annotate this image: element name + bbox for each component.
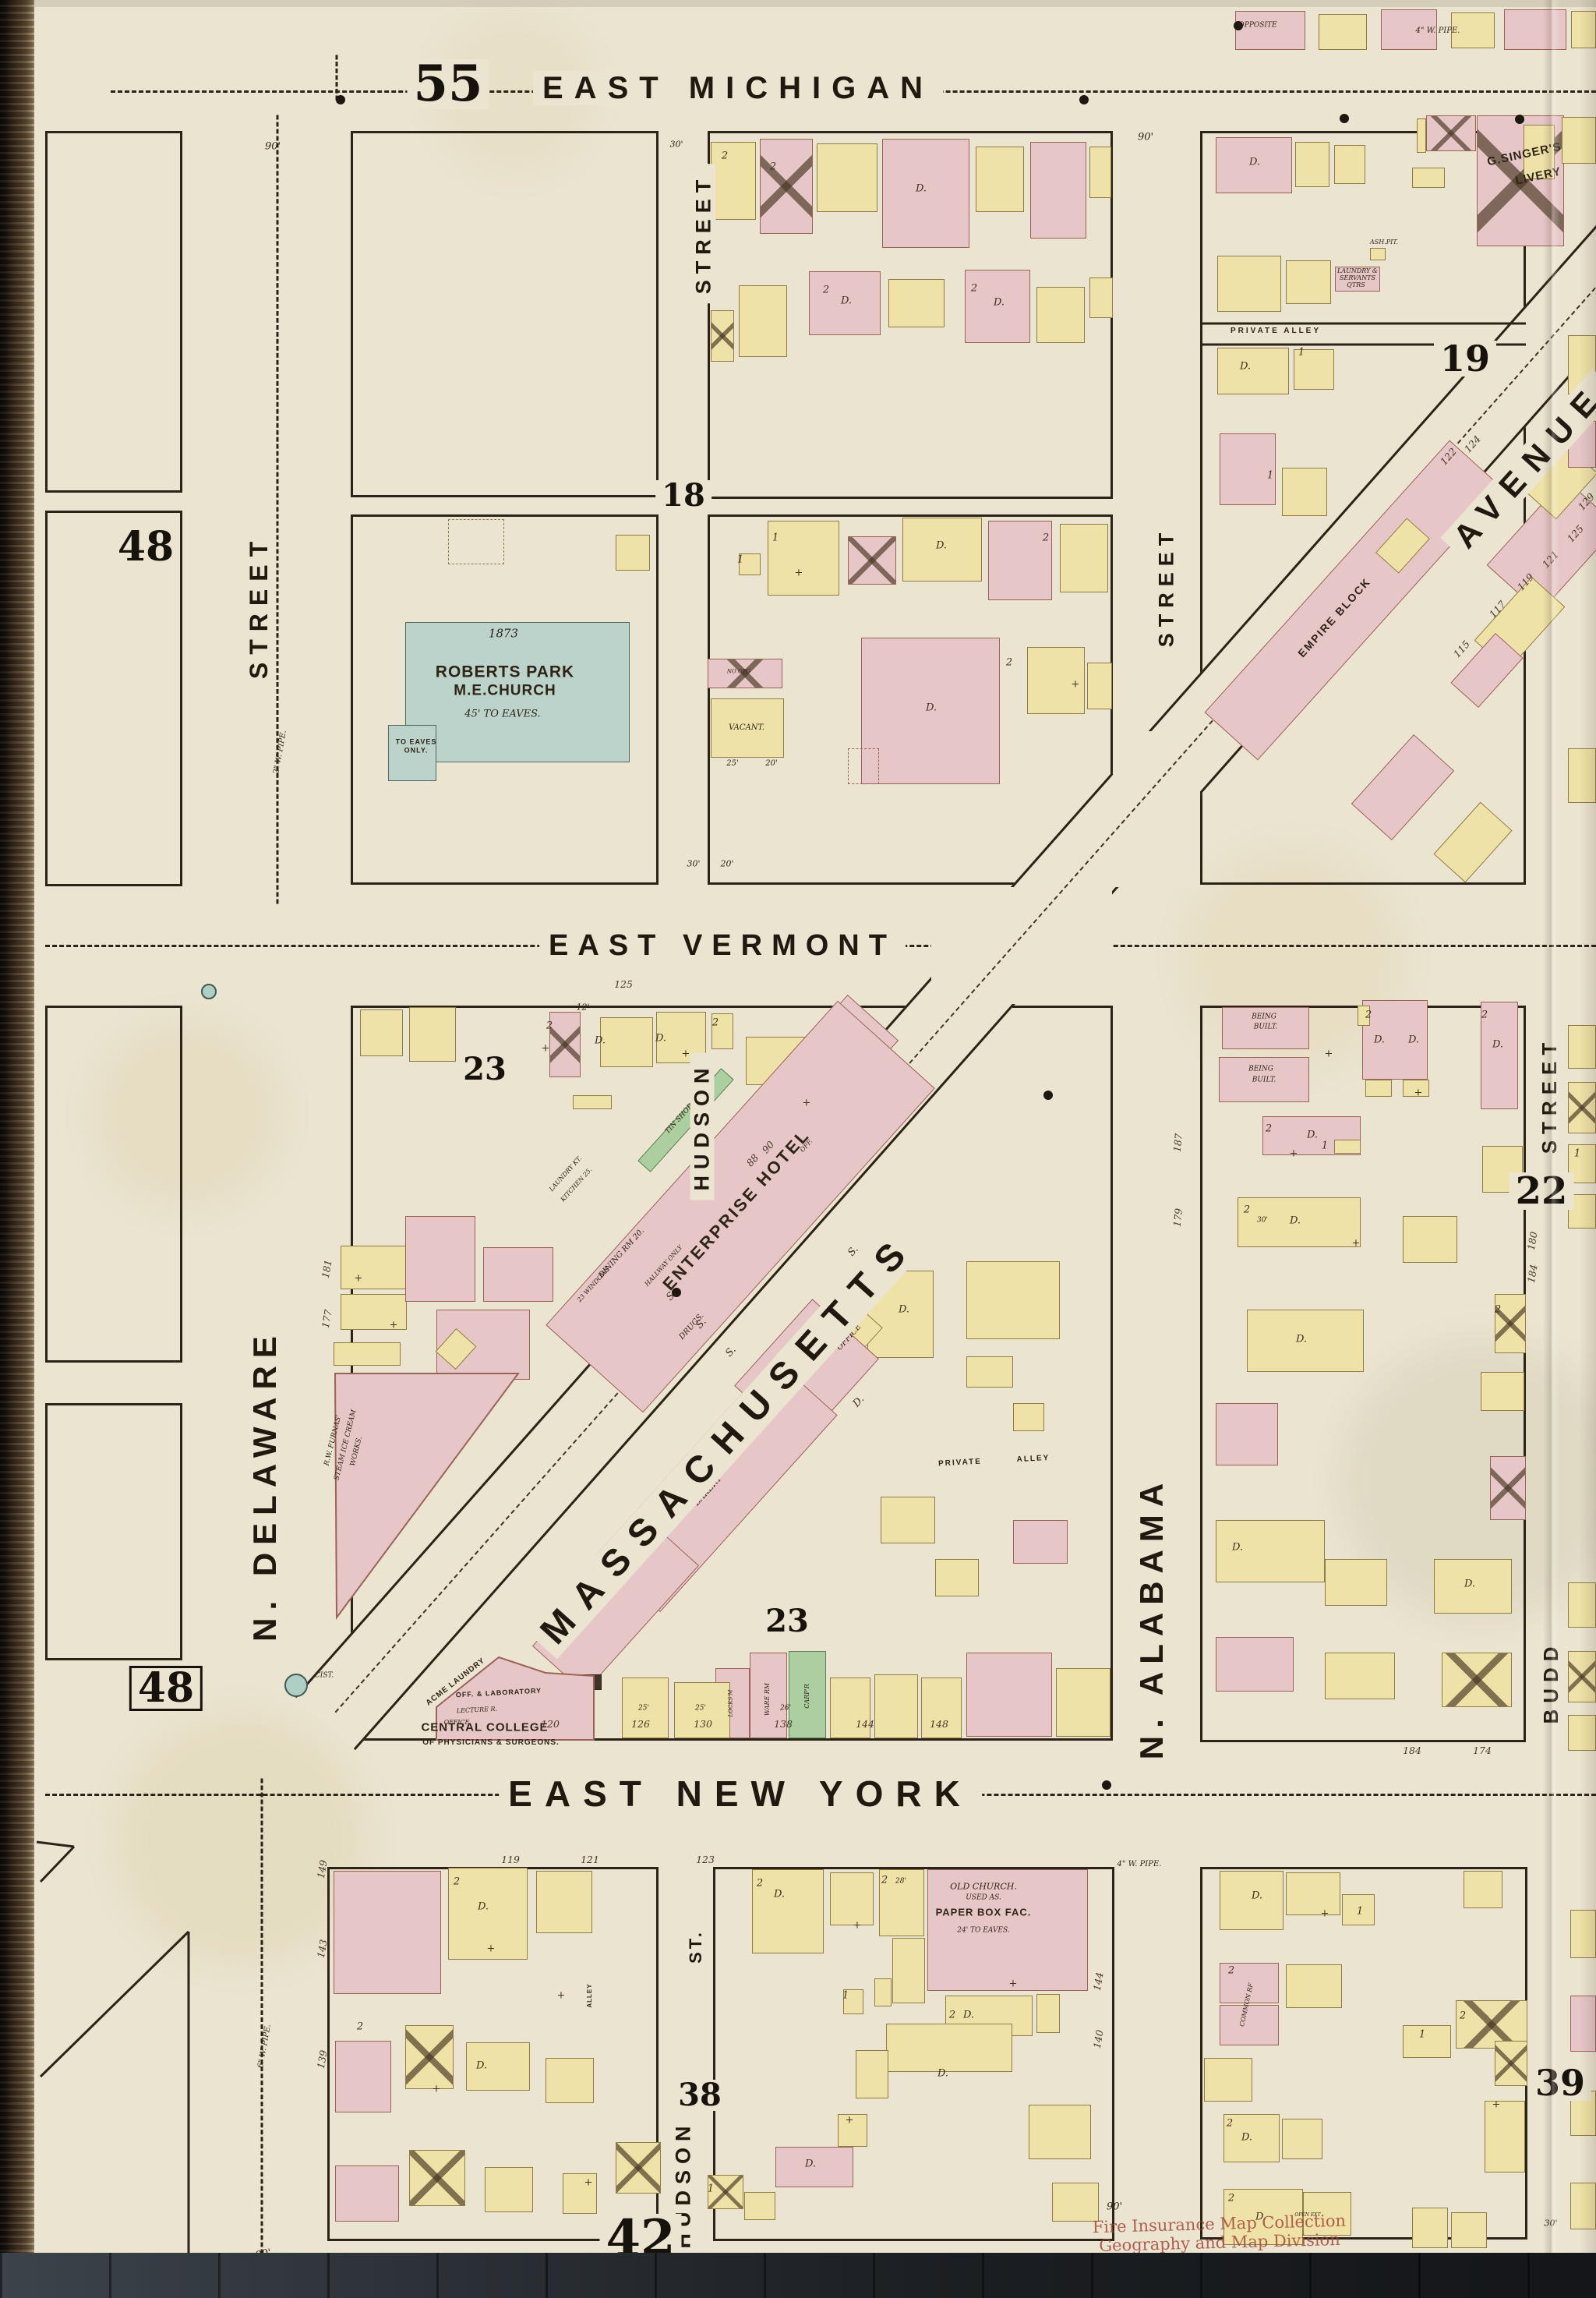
building-mark: + xyxy=(355,1274,363,1284)
building-mark: 2 xyxy=(357,2022,363,2032)
building-mark: + xyxy=(1321,1909,1329,1919)
house-number: 120 xyxy=(541,1720,560,1730)
building-mark: D. xyxy=(1464,1579,1475,1589)
annotation: PAPER BOX FAC. xyxy=(936,1907,1032,1918)
annotation: LAUNDRY & xyxy=(1337,268,1378,274)
sheet-number: 23 xyxy=(457,1054,513,1085)
building-mark: 2 xyxy=(1228,1966,1234,1976)
street-label: N. ALABAMA xyxy=(1134,1466,1170,1769)
annotation: 20' xyxy=(720,860,733,868)
building-mark: + xyxy=(584,2178,593,2188)
cistern-symbol xyxy=(202,985,216,999)
building-mark: 2 xyxy=(546,1021,553,1031)
building-mark: 2 xyxy=(1043,533,1049,543)
building-mark: + xyxy=(846,2116,854,2126)
hydrant-dot xyxy=(1043,1091,1053,1100)
cistern-symbol xyxy=(285,1674,307,1696)
building-mark: 2 xyxy=(770,162,776,172)
hydrant-dot xyxy=(1515,115,1524,124)
street-label: ST. xyxy=(686,1920,706,1973)
building-mark: 2 xyxy=(1460,2011,1466,2021)
building-mark: D. xyxy=(937,2069,948,2079)
house-number: 148 xyxy=(930,1720,948,1730)
annotation: CIST. xyxy=(315,1673,334,1680)
building-mark: D. xyxy=(963,2010,974,2020)
annotation: 1873 xyxy=(489,628,518,640)
building-mark: D. xyxy=(926,703,937,713)
building-mark: + xyxy=(1352,1239,1361,1249)
building-mark: D. xyxy=(655,1034,666,1044)
building-mark: 1 xyxy=(1267,471,1273,481)
annotation: WARE RM xyxy=(764,1683,771,1716)
annotation: 90' xyxy=(1107,2202,1122,2212)
survey-line xyxy=(41,1847,74,1882)
annotation: USED AS. xyxy=(966,1895,1001,1902)
building-mark: 2 xyxy=(1365,1010,1372,1020)
map-content: 1873ROBERTS PARKM.E.CHURCH45' TO EAVES.T… xyxy=(0,0,1596,2298)
building-mark: D. xyxy=(478,1902,489,1912)
annotation: 28' xyxy=(895,1879,906,1886)
building-mark: D. xyxy=(1307,1130,1318,1140)
annotation: 4" W. PIPE. xyxy=(1416,27,1460,35)
annotation: 12' xyxy=(576,1003,589,1012)
sheet-number: 48 xyxy=(129,1666,203,1711)
building-mark: + xyxy=(433,2084,441,2095)
house-number: 138 xyxy=(774,1720,793,1730)
building-mark: D. xyxy=(774,1890,785,1900)
house-number: 121 xyxy=(581,1855,599,1865)
annotation: LOCKS'M xyxy=(729,1690,734,1717)
sheet-number: 23 xyxy=(759,1606,815,1637)
annotation: 90' xyxy=(265,142,281,152)
building-mark: D. xyxy=(476,2061,487,2071)
building-mark: 2 xyxy=(949,2010,955,2020)
building-mark: + xyxy=(682,1049,690,1059)
building-mark: D. xyxy=(1290,1216,1301,1226)
building-mark: 1 xyxy=(1357,1907,1363,1917)
building-mark: + xyxy=(795,568,803,578)
street-label: STREET xyxy=(692,164,716,304)
annotation: BUILT. xyxy=(1252,1077,1276,1084)
building-mark: D. xyxy=(994,298,1005,308)
building-mark: 2 xyxy=(1481,1010,1488,1020)
annotation: M.E.CHURCH xyxy=(454,684,556,698)
building-mark: D. xyxy=(841,296,852,306)
annotation: NO OPG xyxy=(727,670,750,675)
house-number: 187 xyxy=(1173,1133,1185,1152)
building-mark: D. xyxy=(899,1305,909,1315)
annotation: OF PHYSICIANS & SURGEONS. xyxy=(422,1739,560,1747)
sheet-number: 19 xyxy=(1434,341,1496,377)
building-mark: D. xyxy=(1296,1335,1307,1345)
house-number: 126 xyxy=(631,1720,650,1730)
building-mark: D. xyxy=(1241,2133,1252,2143)
annotation: 4" W. PIPE. xyxy=(1118,1861,1162,1868)
annotation: 25' xyxy=(726,760,738,768)
building-mark: + xyxy=(557,1991,566,2001)
house-number: 119 xyxy=(501,1855,520,1865)
hydrant-dot xyxy=(336,95,345,104)
building-mark: + xyxy=(1325,1049,1333,1059)
annotation: CARP'R xyxy=(804,1684,810,1709)
annotation: 24' TO EAVES. xyxy=(957,1928,1009,1935)
street-label: EAST NEW YORK xyxy=(499,1774,982,1813)
building-mark: 1 xyxy=(842,1991,849,2001)
annotation: 30' xyxy=(687,860,700,868)
book-binding-edge xyxy=(0,0,34,2298)
annotation: ONLY. xyxy=(404,748,429,755)
annotation: 30' xyxy=(1257,1218,1268,1225)
hydrant-dot xyxy=(1102,1780,1111,1790)
building-mark: 1 xyxy=(1419,2030,1425,2040)
annotation: 30' xyxy=(669,140,683,149)
annotation: VACANT. xyxy=(729,724,764,732)
annotation: OPPOSITE xyxy=(1238,23,1276,30)
building-mark: 2 xyxy=(1006,658,1012,668)
house-number: 184 xyxy=(1403,1746,1421,1756)
building-mark: 2 xyxy=(757,1879,763,1889)
building-mark: 2 xyxy=(712,1018,719,1028)
building-mark: 1 xyxy=(772,533,779,543)
annotation: 20' xyxy=(765,760,777,768)
annotation: ROBERTS PARK xyxy=(436,664,574,681)
building-mark: + xyxy=(853,1921,862,1931)
building-mark: + xyxy=(487,1944,496,1954)
building-mark: D. xyxy=(1252,1891,1262,1901)
building-mark: D. xyxy=(805,2159,816,2169)
building-mark: 1 xyxy=(1322,1141,1328,1151)
building-mark: 1 xyxy=(1298,348,1305,358)
street-label: HUDSON xyxy=(690,1052,715,1200)
building-mark: 1 xyxy=(737,555,743,565)
building-mark: D. xyxy=(1240,362,1251,372)
house-number: 130 xyxy=(694,1720,712,1730)
building-mark: 2 xyxy=(454,1877,460,1887)
annotation: PRIVATE ALLEY xyxy=(1231,327,1321,335)
annotation: TO EAVES xyxy=(396,739,437,746)
building-mark: D. xyxy=(595,1036,606,1046)
sanborn-map-sheet: 1873ROBERTS PARKM.E.CHURCH45' TO EAVES.T… xyxy=(0,0,1596,2298)
building-mark: 2 xyxy=(722,151,728,161)
hydrant-dot xyxy=(1340,114,1349,123)
building-mark: + xyxy=(542,1044,550,1054)
building-mark: 1 xyxy=(708,2184,714,2194)
annotation: 45' TO EAVES. xyxy=(464,709,540,719)
survey-line xyxy=(37,1842,74,1847)
building-mark: 2 xyxy=(1495,1305,1501,1315)
annotation: BUILT. xyxy=(1254,1024,1278,1031)
building-mark: 2 xyxy=(1228,2194,1234,2204)
building-mark: + xyxy=(803,1098,811,1108)
building-mark: 2 xyxy=(971,284,977,294)
annotation: OLD CHURCH. xyxy=(950,1883,1017,1891)
building-mark: + xyxy=(1492,2100,1501,2110)
sheet-number: 48 xyxy=(111,527,180,567)
annotation: QTRS xyxy=(1347,282,1365,288)
annotation: 25' xyxy=(695,1706,706,1713)
house-number: 174 xyxy=(1473,1746,1492,1756)
survey-line xyxy=(41,1932,189,2077)
annotation: 90' xyxy=(1138,133,1153,143)
building-mark: D. xyxy=(1249,157,1260,168)
building-mark: 2 xyxy=(881,1876,888,1886)
house-number: 123 xyxy=(696,1855,715,1865)
annotation: BEING xyxy=(1252,1014,1276,1021)
building-mark: 2 xyxy=(1227,2119,1233,2129)
house-number: 125 xyxy=(614,980,633,990)
furnas-ice-cream-works xyxy=(335,1373,518,1617)
annotation: SERVANTS xyxy=(1340,275,1375,281)
annotation: 26' xyxy=(780,1706,791,1713)
building-mark: D. xyxy=(916,184,927,194)
table-surface xyxy=(0,2253,1596,2298)
street-label: EAST VERMONT xyxy=(539,929,906,962)
building-mark: D. xyxy=(1232,1543,1243,1553)
building-mark: D. xyxy=(1374,1035,1385,1045)
street-label: STREET xyxy=(245,525,273,688)
building-mark: + xyxy=(1290,1149,1298,1159)
annotation: ALLEY xyxy=(587,1983,593,2007)
building-mark: + xyxy=(390,1320,398,1331)
building-mark: D. xyxy=(1492,1040,1503,1050)
annotation: ASH.PIT. xyxy=(1370,239,1398,246)
annotation: 25' xyxy=(638,1706,649,1713)
page-fold-crease xyxy=(1543,0,1560,2298)
building-mark: + xyxy=(1072,680,1080,690)
building-mark: D. xyxy=(1408,1035,1419,1045)
annotation: BEING xyxy=(1248,1066,1273,1073)
sheet-number: 22 xyxy=(1509,1172,1574,1210)
building-mark: 2 xyxy=(823,285,829,295)
street-label: N. DELAWARE xyxy=(247,1319,283,1651)
page-right-edge-shadow xyxy=(1579,0,1596,2298)
sheet-number: 55 xyxy=(407,59,489,109)
hydrant-dot xyxy=(1079,95,1089,104)
building-mark: + xyxy=(1414,1088,1423,1098)
street-label: STREET xyxy=(1155,518,1179,657)
building-mark: + xyxy=(1009,1979,1018,1989)
building-mark: 2 xyxy=(1244,1205,1250,1215)
sheet-number: 18 xyxy=(655,480,711,511)
house-number: 179 xyxy=(1173,1207,1185,1227)
street-label: EAST MICHIGAN xyxy=(533,71,943,105)
building-mark: D. xyxy=(936,541,947,551)
sheet-number: 38 xyxy=(672,2080,728,2111)
annotation: CENTRAL COLLEGE xyxy=(421,1722,548,1734)
house-number: 144 xyxy=(856,1720,874,1730)
building-mark: 2 xyxy=(1266,1124,1272,1134)
